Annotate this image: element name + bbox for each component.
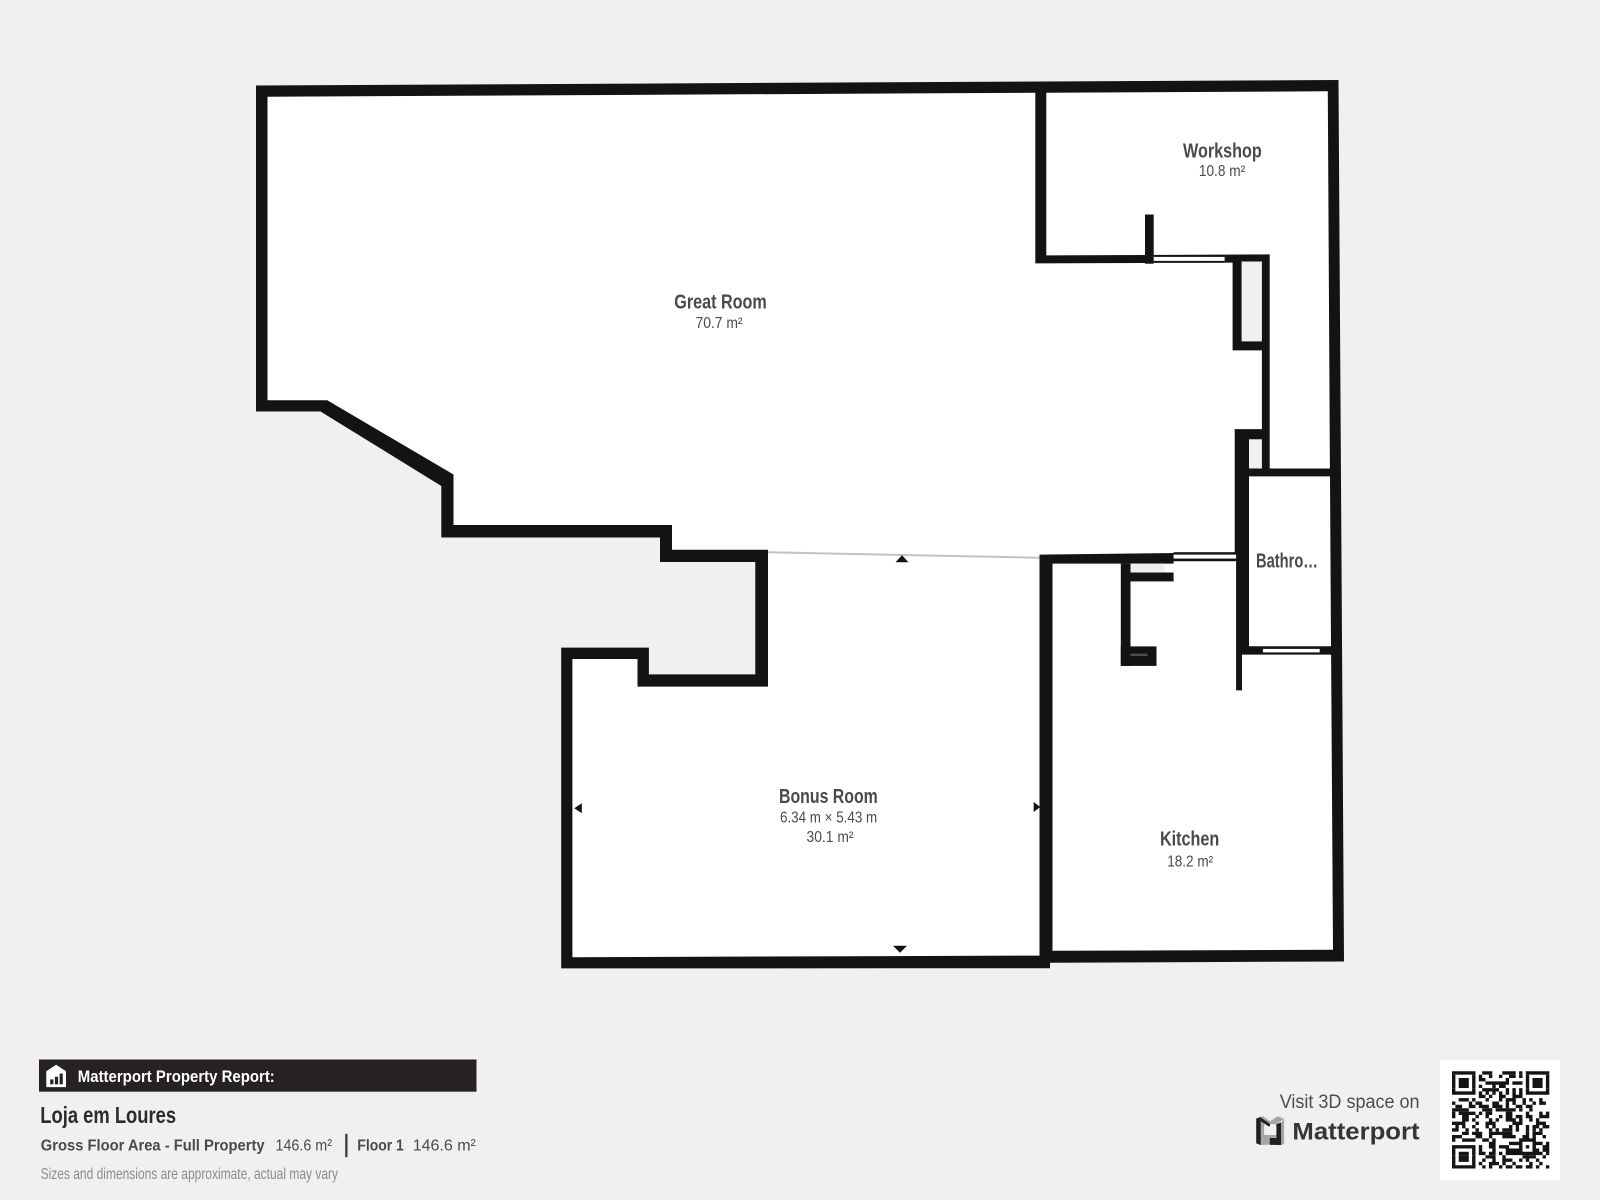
svg-text:Great Room: Great Room xyxy=(674,292,767,314)
svg-text:30.1 m²: 30.1 m² xyxy=(807,829,854,846)
svg-text:Visit 3D space on: Visit 3D space on xyxy=(1280,1092,1420,1113)
svg-text:18.2 m²: 18.2 m² xyxy=(1167,854,1213,871)
svg-text:Bathro…: Bathro… xyxy=(1256,551,1318,573)
svg-text:146.6 m²: 146.6 m² xyxy=(276,1137,333,1154)
svg-text:Sizes and dimensions are appro: Sizes and dimensions are approximate, ac… xyxy=(41,1166,338,1183)
svg-text:Kitchen: Kitchen xyxy=(1160,829,1219,851)
svg-text:Matterport Property Report:: Matterport Property Report: xyxy=(78,1067,275,1086)
svg-text:70.7 m²: 70.7 m² xyxy=(696,315,743,332)
svg-text:146.6 m²: 146.6 m² xyxy=(413,1137,477,1154)
svg-text:6.34 m × 5.43 m: 6.34 m × 5.43 m xyxy=(780,810,877,827)
svg-text:Floor 1: Floor 1 xyxy=(357,1137,404,1154)
svg-text:Loja em Loures: Loja em Loures xyxy=(40,1102,176,1128)
svg-text:Gross Floor Area - Full Proper: Gross Floor Area - Full Property xyxy=(41,1137,265,1154)
svg-text:Workshop: Workshop xyxy=(1183,141,1262,163)
svg-text:Bonus Room: Bonus Room xyxy=(779,786,878,808)
svg-text:10.8 m²: 10.8 m² xyxy=(1199,163,1245,180)
svg-text:Matterport: Matterport xyxy=(1292,1119,1419,1146)
